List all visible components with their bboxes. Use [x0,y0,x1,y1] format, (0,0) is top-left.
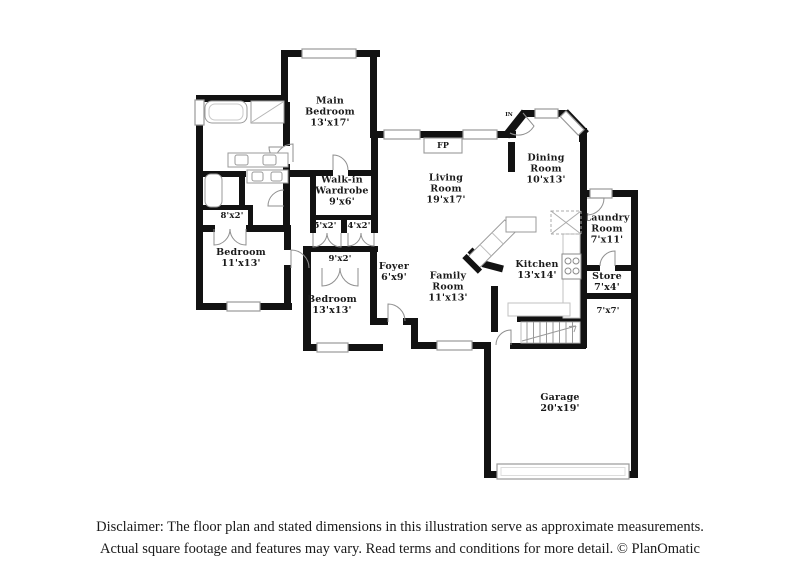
island-counter-2 [506,217,536,232]
door-arc [348,233,361,246]
room-label-bedroom-middle: Bedroom 13'x13' [307,295,357,317]
window [590,189,612,198]
door-arc [268,190,284,206]
closet-label-9x2: 9'x2' [328,254,351,264]
room-label-foyer: Foyer 6'x9' [379,262,409,284]
room-label-store: Store 7'x4' [592,272,622,294]
room-dims: 13'x14' [515,271,558,282]
disclaimer: Disclaimer: The floor plan and stated di… [0,517,800,561]
wall [341,215,347,233]
window [437,341,472,350]
room-label-laundry-room: Laundry Room 7'x11' [584,214,629,247]
staircase [521,322,580,343]
stairs-arrow [569,326,576,327]
floor-plan-page: Main Bedroom 13'x17' Walk-in Wardrobe 9'… [0,0,800,582]
room-dims: 11'x13' [216,259,266,270]
wall [491,286,498,332]
disclaimer-line-1: Disclaimer: The floor plan and stated di… [0,517,800,539]
wall [370,318,388,325]
window [195,100,204,125]
window [317,343,348,352]
wall [284,265,291,310]
closet-label-8x2: 8'x2' [220,211,243,221]
room-dims: 20'x19' [540,404,579,415]
room-name: Walk-in Wardrobe [315,176,368,198]
door-arc [600,251,615,266]
window [227,302,260,311]
door-arc [496,330,511,345]
wall [284,225,291,250]
door-arc [313,233,327,247]
room-dims: 13'x17' [305,118,355,129]
room-name: Main Bedroom [305,97,355,119]
wall [370,50,377,138]
closet-label-7x7: 7'x7' [596,306,619,316]
room-dims: 9'x6' [315,197,368,208]
wall [484,342,491,478]
room-label-garage: Garage 20'x19' [540,393,579,415]
closet-label-5x2: 5'x2' [313,221,336,231]
wall [239,171,245,207]
room-name: Dining Room [526,154,565,176]
wall [631,190,638,478]
wall [248,205,253,227]
door-arc [340,268,358,286]
room-label-kitchen: Kitchen 13'x14' [515,260,558,282]
door-arc [230,229,246,245]
door-arc [214,229,230,245]
wall [508,142,515,172]
door-arc [327,233,341,247]
room-dims: 7'x11' [584,235,629,246]
garage-door [497,464,629,479]
room-label-bedroom-left: Bedroom 11'x13' [216,248,266,270]
door-arc [388,304,405,322]
window [463,130,497,139]
room-dims: 6'x9' [379,273,409,284]
floor-plan-drawing [0,0,800,582]
room-name: Laundry Room [584,214,629,236]
wall [290,170,312,177]
door-arc [361,233,374,246]
room-label-family-room: Family Room 11'x13' [428,272,467,305]
stairs-box [521,322,580,343]
wall [196,95,203,310]
door-arc [333,155,348,170]
wall [510,343,586,349]
wall [281,50,288,102]
door-arc [322,268,340,286]
fireplace-label: FP [437,140,449,150]
room-label-walk-in-wardrobe: Walk-in Wardrobe 9'x6' [315,176,368,209]
wall [370,246,377,325]
window [384,130,420,139]
room-dims: 19'x17' [426,195,465,206]
room-dims: 11'x13' [428,293,467,304]
wall [580,135,587,197]
kitchen-counter [508,303,570,316]
disclaimer-line-2: Actual square footage and features may v… [0,539,800,561]
room-name: Family Room [428,272,467,294]
entry-label: IN [505,112,513,118]
room-dims: 7'x4' [592,283,622,294]
room-name: Living Room [426,174,465,196]
wall [371,138,378,233]
room-dims: 10'x13' [526,175,565,186]
room-label-main-bedroom: Main Bedroom 13'x17' [305,97,355,130]
room-label-living-room: Living Room 19'x17' [426,174,465,207]
room-dims: 13'x13' [307,306,357,317]
closet-label-4x2: 4'x2' [347,221,370,231]
stove [562,254,581,279]
room-label-dining-room: Dining Room 10'x13' [526,154,565,187]
window [302,49,356,58]
wall [196,225,215,232]
window [535,109,558,118]
bathtub [205,174,222,207]
